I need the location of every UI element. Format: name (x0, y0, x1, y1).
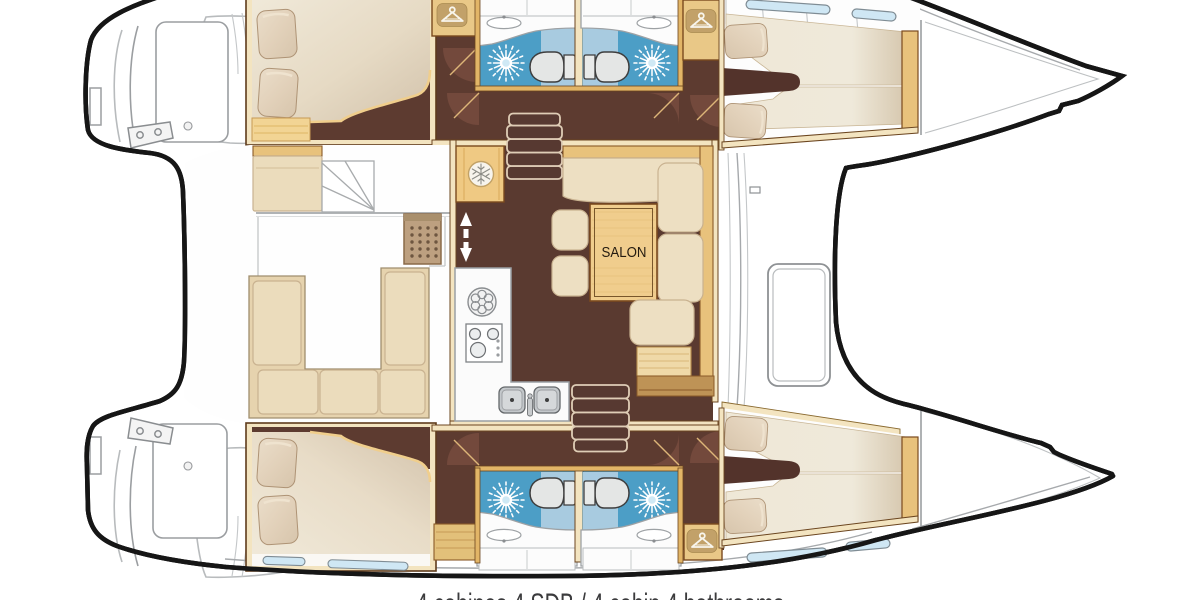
svg-text:SALON: SALON (602, 245, 647, 261)
svg-text:4 cabines 4 SDB / 4 cabin 4 ba: 4 cabines 4 SDB / 4 cabin 4 bathrooms (416, 588, 784, 600)
